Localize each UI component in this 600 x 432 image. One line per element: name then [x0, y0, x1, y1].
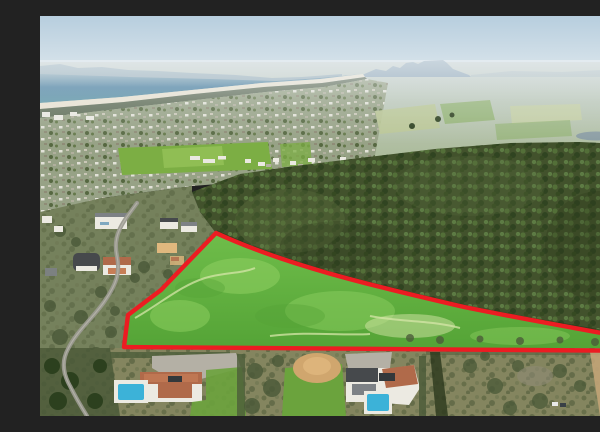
solar-panels: [379, 373, 395, 381]
paving-east: [345, 352, 392, 368]
swimming-pool-east: [364, 391, 392, 414]
aerial-property-photo: [40, 16, 600, 416]
scene: [40, 16, 600, 416]
solar-panels: [168, 376, 182, 382]
parked-car-dark: [560, 403, 566, 407]
mansion-west: [140, 372, 202, 402]
hedge-west: [237, 354, 245, 416]
atmospheric-haze: [40, 60, 600, 144]
foreground: [40, 348, 600, 416]
parked-car-white: [552, 402, 558, 406]
modern-curved-roof-house: [73, 253, 100, 271]
hedge-east: [419, 356, 426, 416]
